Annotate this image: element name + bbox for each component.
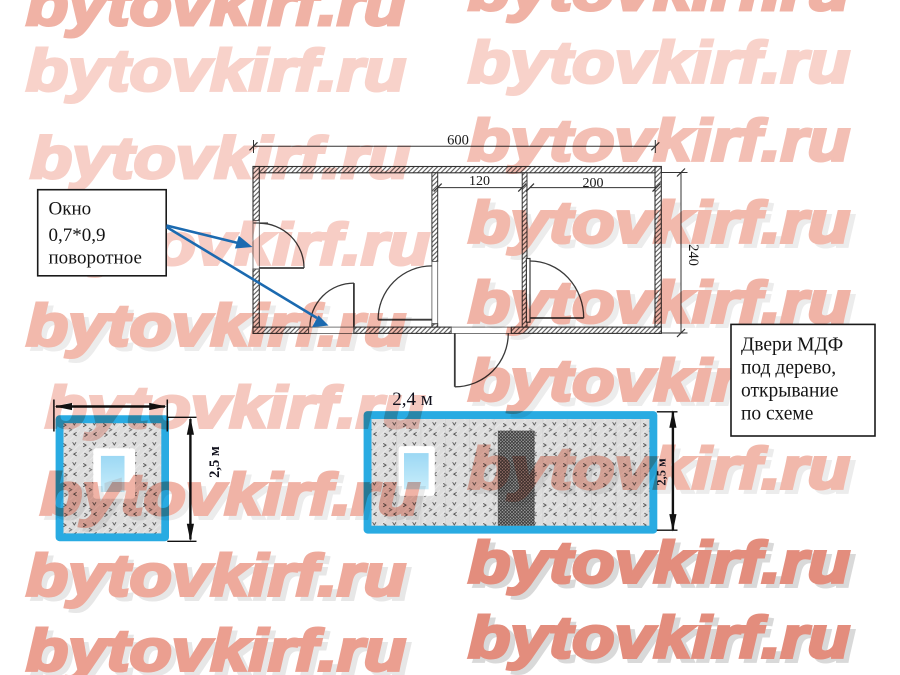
svg-text:2,4 м: 2,4 м [392, 389, 433, 410]
svg-text:поворотное: поворотное [49, 248, 142, 269]
svg-text:bytovkirf.ru: bytovkirf.ru [468, 605, 850, 670]
svg-text:bytovkirf.ru: bytovkirf.ru [26, 38, 406, 103]
svg-text:bytovkirf.ru: bytovkirf.ru [30, 126, 410, 191]
svg-text:под дерево,: под дерево, [741, 358, 836, 379]
svg-text:по схеме: по схеме [741, 404, 813, 425]
svg-text:bytovkirf.ru: bytovkirf.ru [468, 30, 850, 95]
svg-text:bytovkirf.ru: bytovkirf.ru [468, 530, 850, 595]
svg-text:bytovkirf.ru: bytovkirf.ru [26, 293, 406, 358]
svg-text:bytovkirf.ru: bytovkirf.ru [468, 109, 850, 174]
svg-text:2,5 м: 2,5 м [654, 458, 668, 486]
svg-text:bytovkirf.ru: bytovkirf.ru [45, 375, 425, 440]
svg-text:2,5 м: 2,5 м [207, 446, 223, 478]
svg-text:bytovkirf.ru: bytovkirf.ru [26, 543, 406, 608]
svg-text:200: 200 [583, 176, 604, 191]
svg-text:bytovkirf.ru: bytovkirf.ru [26, 0, 406, 38]
svg-text:120: 120 [469, 174, 490, 189]
svg-text:bytovkirf.ru: bytovkirf.ru [40, 462, 420, 527]
svg-text:Окно: Окно [49, 199, 92, 220]
svg-text:600: 600 [447, 133, 469, 149]
svg-text:0,7*0,9: 0,7*0,9 [49, 225, 106, 246]
svg-text:открывание: открывание [741, 381, 838, 402]
svg-text:Двери МДФ: Двери МДФ [741, 335, 843, 356]
svg-text:bytovkirf.ru: bytovkirf.ru [26, 618, 406, 675]
svg-text:240: 240 [685, 244, 701, 266]
svg-text:bytovkirf.ru: bytovkirf.ru [468, 190, 850, 255]
svg-text:bytovkirf.ru: bytovkirf.ru [468, 0, 850, 23]
